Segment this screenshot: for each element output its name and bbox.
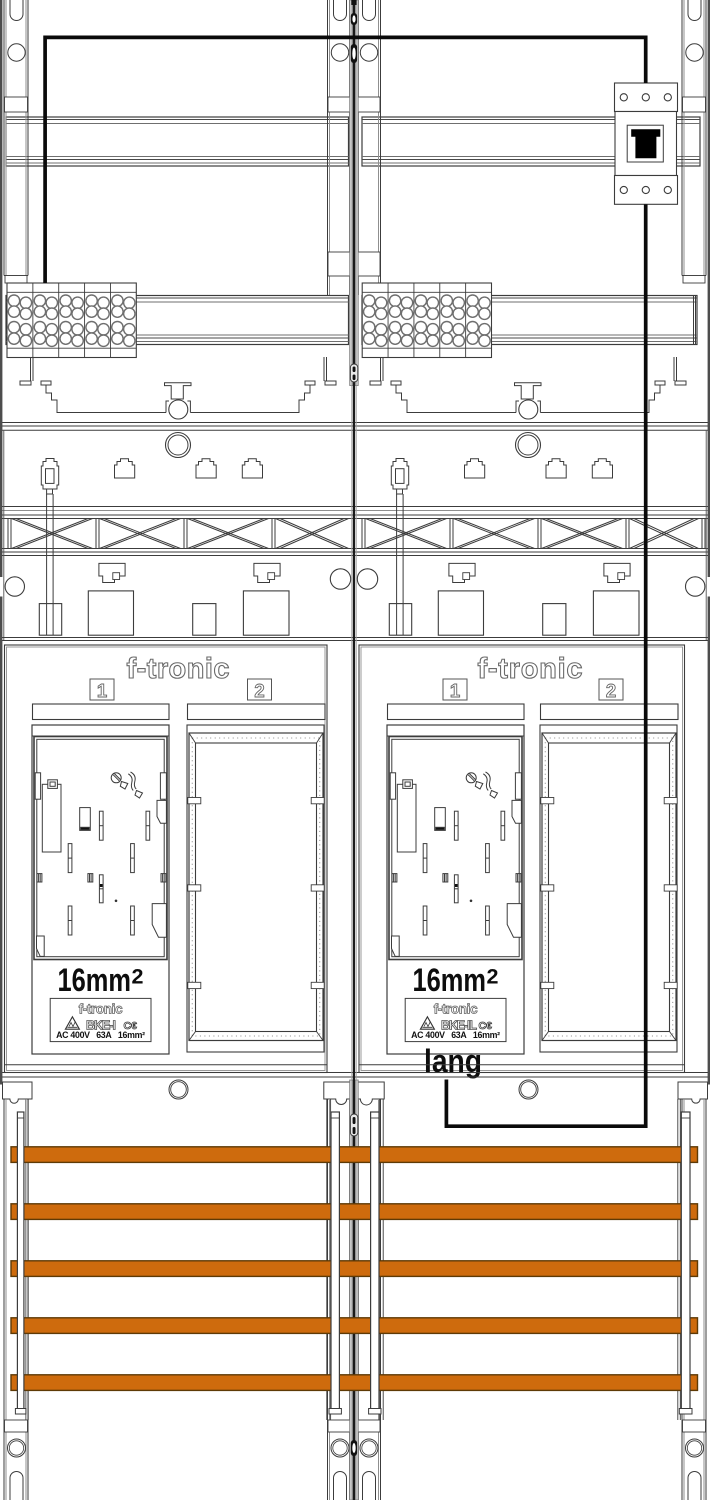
svg-text:2: 2: [254, 680, 264, 701]
svg-text:2: 2: [606, 680, 616, 701]
svg-text:1: 1: [450, 680, 460, 701]
svg-text:1: 1: [97, 680, 107, 701]
svg-text:f-tronic: f-tronic: [127, 653, 230, 685]
svg-text:2: 2: [132, 965, 144, 989]
svg-text:2: 2: [487, 965, 499, 989]
svg-text:lang: lang: [424, 1043, 482, 1079]
svg-text:AC 400V 63A 16mm²: AC 400V 63A 16mm²: [411, 1030, 500, 1040]
svg-text:16mm: 16mm: [413, 962, 487, 998]
svg-text:AC 400V 63A 16mm²: AC 400V 63A 16mm²: [56, 1030, 145, 1040]
svg-text:f-tronic: f-tronic: [434, 1002, 478, 1017]
svg-text:f-tronic: f-tronic: [478, 653, 583, 685]
svg-text:f-tronic: f-tronic: [79, 1002, 123, 1017]
svg-text:16mm: 16mm: [58, 962, 132, 998]
